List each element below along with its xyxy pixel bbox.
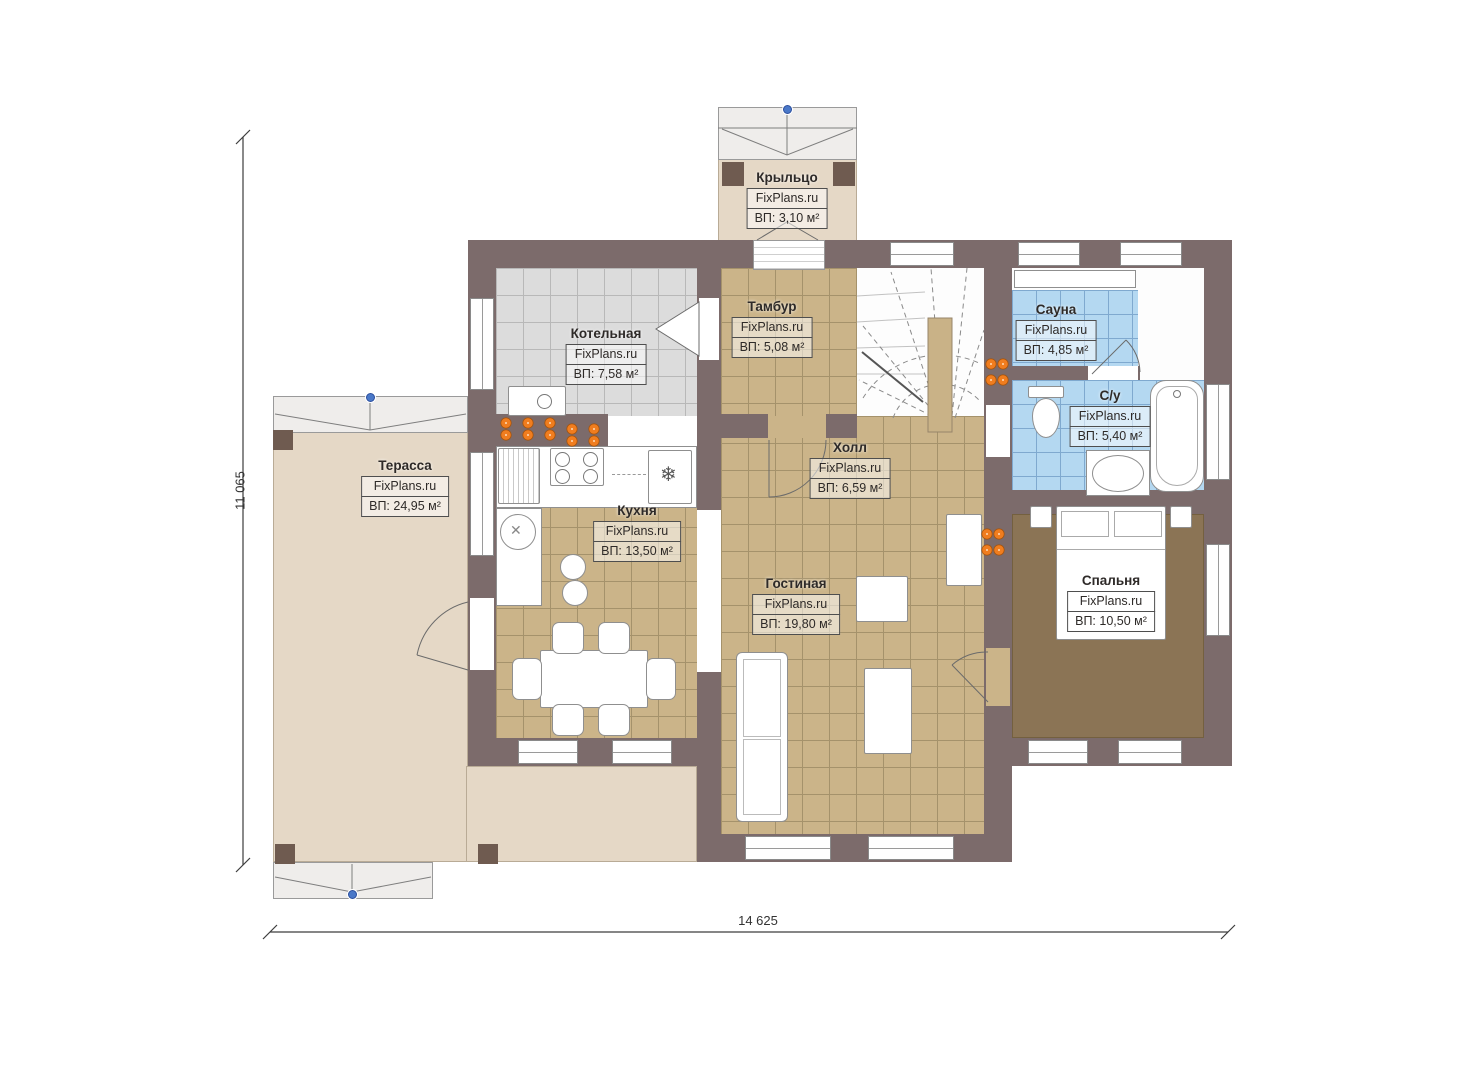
room-area: ВП: 4,85 м²	[1016, 340, 1097, 361]
radiator	[984, 374, 1010, 386]
dining-chair	[646, 658, 676, 700]
wall-tambour-stub-left	[721, 414, 768, 438]
door-porch	[753, 240, 825, 270]
room-name: С/у	[1070, 388, 1151, 403]
roof-marker-porch	[783, 105, 792, 114]
radiator	[980, 528, 1006, 540]
room-label-kitchen: Кухня FixPlans.ruВП: 13,50 м²	[593, 503, 681, 562]
room-area: ВП: 7,58 м²	[566, 364, 647, 385]
wall-kitchen-bottom	[468, 738, 721, 766]
pillar-terrace-s	[478, 844, 498, 864]
dining-table	[540, 650, 648, 708]
window-bedroom-bottom-2	[1118, 740, 1182, 764]
roof-marker-west	[366, 393, 375, 402]
room-area: ВП: 6,59 м²	[810, 478, 891, 499]
sofa-cushion	[743, 659, 781, 737]
radiator	[984, 358, 1010, 370]
wall-top	[468, 240, 1232, 268]
room-name: Крыльцо	[747, 170, 828, 185]
room-name: Тамбур	[732, 299, 813, 314]
dining-chair	[552, 622, 584, 654]
porch-roof	[718, 107, 857, 160]
room-label-tambour: Тамбур FixPlans.ruВП: 5,08 м²	[732, 299, 813, 358]
brand-link: FixPlans.ru	[1016, 320, 1097, 341]
bed-pillow	[1114, 511, 1162, 537]
wall-right	[1204, 240, 1232, 766]
dining-chair	[598, 622, 630, 654]
window-boiler-left	[470, 298, 494, 390]
room-label-terrace: Терасса FixPlans.ruВП: 24,95 м²	[361, 458, 449, 517]
roof-marker-south	[348, 890, 357, 899]
terrace-deck-south	[466, 766, 697, 862]
room-label-sauna: Сауна FixPlans.ruВП: 4,85 м²	[1016, 302, 1097, 361]
sauna-bench	[1014, 270, 1136, 288]
window-living-bottom-1	[745, 836, 831, 860]
dining-chair	[598, 704, 630, 736]
room-name: Гостиная	[752, 576, 840, 591]
room-area: ВП: 5,40 м²	[1070, 426, 1151, 447]
pillar-porch-left	[722, 162, 744, 186]
brand-link: FixPlans.ru	[361, 476, 449, 497]
brand-link: FixPlans.ru	[810, 458, 891, 479]
room-label-porch: Крыльцо FixPlans.ruВП: 3,10 м²	[747, 170, 828, 229]
bed-pillow	[1061, 511, 1109, 537]
stove	[550, 448, 604, 486]
radiator	[980, 544, 1006, 556]
dimension-height-label: 11 065	[233, 459, 248, 523]
radiator	[588, 422, 600, 448]
door-opening-sauna	[1088, 366, 1138, 380]
window-bathroom-right	[1206, 384, 1230, 480]
room-area: ВП: 5,08 м²	[732, 337, 813, 358]
kitchen-cabinet-rack	[498, 448, 540, 504]
room-area: ВП: 13,50 м²	[593, 541, 681, 562]
room-name: Терасса	[361, 458, 449, 473]
dining-chair	[512, 658, 542, 700]
room-label-boiler: Котельная FixPlans.ruВП: 7,58 м²	[566, 326, 647, 385]
radiator	[566, 422, 578, 448]
stool-2	[562, 580, 588, 606]
bathtub-faucet	[1173, 390, 1181, 398]
bathtub-inner	[1156, 386, 1198, 486]
window-kitchen-bottom-2	[612, 740, 672, 764]
door-opening-boiler	[699, 298, 719, 360]
window-bedroom-right	[1206, 544, 1230, 636]
window-kitchen-left	[470, 452, 494, 556]
room-name: Котельная	[566, 326, 647, 341]
brand-link: FixPlans.ru	[752, 594, 840, 615]
counter-dashes	[612, 474, 646, 475]
room-area: ВП: 24,95 м²	[361, 496, 449, 517]
window-sauna-top-2	[1120, 242, 1182, 266]
pillar-terrace-sw	[275, 844, 295, 864]
door-opening-bathroom	[986, 405, 1010, 457]
radiator	[522, 416, 534, 442]
fridge-snowflake-icon: ❄	[660, 462, 677, 487]
window-living-bottom-2	[868, 836, 954, 860]
brand-link: FixPlans.ru	[732, 317, 813, 338]
stool-1	[560, 554, 586, 580]
coffee-table	[856, 576, 908, 622]
floor-plan-canvas: ❄ ✕	[0, 0, 1474, 1080]
window-stairs-top	[890, 242, 954, 266]
dining-chair	[552, 704, 584, 736]
brand-link: FixPlans.ru	[747, 188, 828, 209]
room-name: Сауна	[1016, 302, 1097, 317]
door-opening-tambour	[768, 416, 826, 438]
toilet-tank	[1028, 386, 1064, 398]
room-name: Кухня	[593, 503, 681, 518]
sink-cross-icon: ✕	[510, 522, 522, 539]
side-table	[864, 668, 912, 754]
sofa-cushion	[743, 739, 781, 815]
boiler-unit	[508, 386, 566, 416]
room-area: ВП: 19,80 м²	[752, 614, 840, 635]
radiator	[544, 416, 556, 442]
room-area: ВП: 10,50 м²	[1067, 611, 1155, 632]
door-opening-terrace	[470, 598, 494, 670]
washbasin	[1092, 455, 1144, 492]
brand-link: FixPlans.ru	[1070, 406, 1151, 427]
bathtub	[1150, 380, 1204, 492]
window-kitchen-bottom-1	[518, 740, 578, 764]
room-label-hall: Холл FixPlans.ruВП: 6,59 м²	[810, 440, 891, 499]
brand-link: FixPlans.ru	[593, 521, 681, 542]
brand-link: FixPlans.ru	[566, 344, 647, 365]
nightstand-right	[1170, 506, 1192, 528]
room-label-bedroom: Спальня FixPlans.ruВП: 10,50 м²	[1067, 573, 1155, 632]
pillar-terrace-nw	[273, 430, 293, 450]
room-label-living: Гостиная FixPlans.ruВП: 19,80 м²	[752, 576, 840, 635]
boiler-unit-dial	[537, 394, 552, 409]
tv-stand	[946, 514, 982, 586]
nightstand-left	[1030, 506, 1052, 528]
door-opening-bedroom	[986, 648, 1010, 706]
room-name: Спальня	[1067, 573, 1155, 588]
radiator	[500, 416, 512, 442]
window-bedroom-bottom-1	[1028, 740, 1088, 764]
window-sauna-top-1	[1018, 242, 1080, 266]
brand-link: FixPlans.ru	[1067, 591, 1155, 612]
wall-boiler-right	[697, 240, 721, 510]
room-label-wc: С/у FixPlans.ruВП: 5,40 м²	[1070, 388, 1151, 447]
room-name: Холл	[810, 440, 891, 455]
dimension-width-label: 14 625	[718, 913, 798, 928]
pillar-porch-right	[833, 162, 855, 186]
staircase	[857, 268, 984, 434]
room-area: ВП: 3,10 м²	[747, 208, 828, 229]
sofa	[736, 652, 788, 822]
wall-tambour-stub-right	[826, 414, 857, 438]
bed-blanket-line	[1057, 549, 1165, 550]
